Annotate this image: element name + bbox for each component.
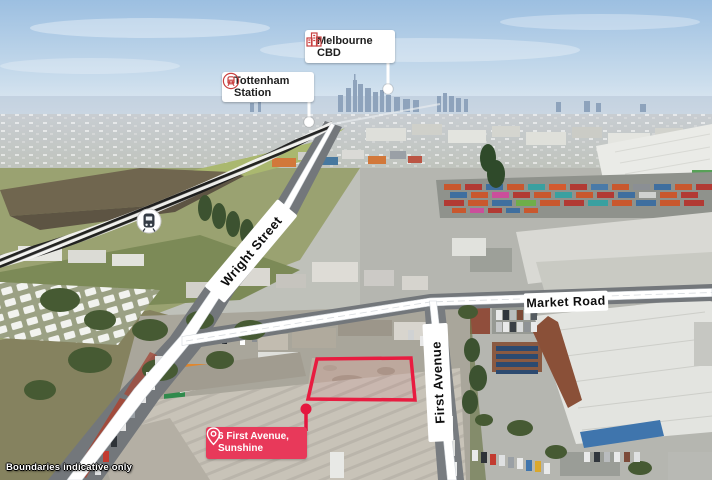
road-label-market-road: Market Road (524, 291, 609, 314)
address-line-1: 6 First Avenue, (218, 431, 289, 443)
aerial-photo-background (0, 0, 712, 480)
aerial-photo: Melbourne CBD Tottenham Station Wright S… (0, 0, 712, 480)
disclaimer-text: Boundaries indicative only (6, 462, 132, 473)
melbourne-marker-dot (383, 84, 393, 94)
callout-melbourne-cbd: Melbourne CBD (305, 30, 395, 63)
tottenham-marker-dot (304, 117, 314, 127)
container-yard (436, 172, 712, 218)
property-address-text: 6 First Avenue, Sunshine (218, 431, 289, 455)
train-on-track-icon (137, 209, 161, 233)
property-marker-dot (301, 404, 312, 415)
callout-label-tottenham: Tottenham Station (234, 75, 294, 99)
callout-tottenham-station: Tottenham Station (222, 72, 314, 102)
property-address-label: 6 First Avenue, Sunshine (206, 427, 307, 459)
address-line-2: Sunshine (218, 443, 289, 455)
callout-label-melbourne: Melbourne CBD (317, 35, 375, 59)
property-boundary (308, 358, 415, 400)
